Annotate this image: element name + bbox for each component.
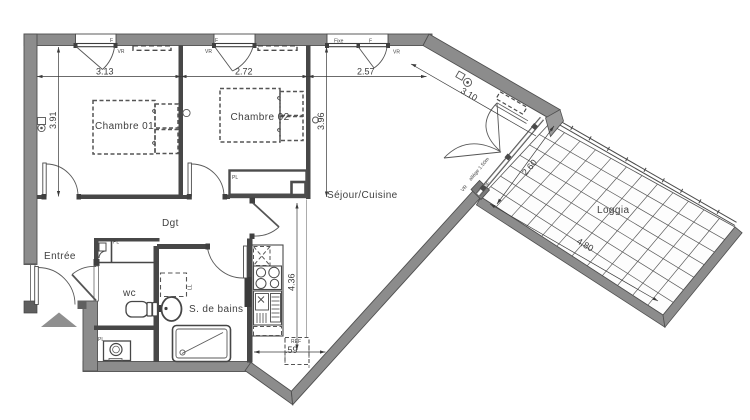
svg-text:Chambre 02: Chambre 02 — [231, 112, 290, 123]
svg-text:VR: VR — [205, 49, 212, 55]
svg-text:3.13: 3.13 — [96, 67, 114, 77]
svg-text:VR: VR — [118, 49, 125, 55]
svg-text:PL: PL — [113, 240, 119, 246]
svg-text:2.57: 2.57 — [357, 67, 375, 77]
svg-text:F: F — [369, 39, 372, 45]
svg-text:2.72: 2.72 — [235, 67, 253, 77]
svg-text:F: F — [215, 38, 218, 44]
svg-text:3.96: 3.96 — [316, 112, 326, 130]
svg-text:4.36: 4.36 — [287, 273, 297, 291]
svg-text:.59: .59 — [285, 345, 298, 355]
svg-text:S. de bains: S. de bains — [189, 304, 243, 315]
svg-text:Chambre 01: Chambre 01 — [95, 121, 154, 132]
svg-text:PL: PL — [232, 175, 238, 181]
svg-text:wc: wc — [122, 288, 136, 299]
svg-text:Fixe: Fixe — [334, 39, 344, 45]
svg-text:Loggia: Loggia — [597, 205, 629, 216]
svg-text:Dgt: Dgt — [162, 218, 179, 229]
svg-text:VR: VR — [393, 50, 400, 56]
svg-text:LL: LL — [188, 284, 194, 290]
svg-text:F: F — [110, 38, 113, 44]
svg-text:Séjour/Cuisine: Séjour/Cuisine — [327, 190, 398, 201]
svg-text:3.91: 3.91 — [48, 111, 58, 129]
svg-text:Entrée: Entrée — [44, 251, 76, 262]
